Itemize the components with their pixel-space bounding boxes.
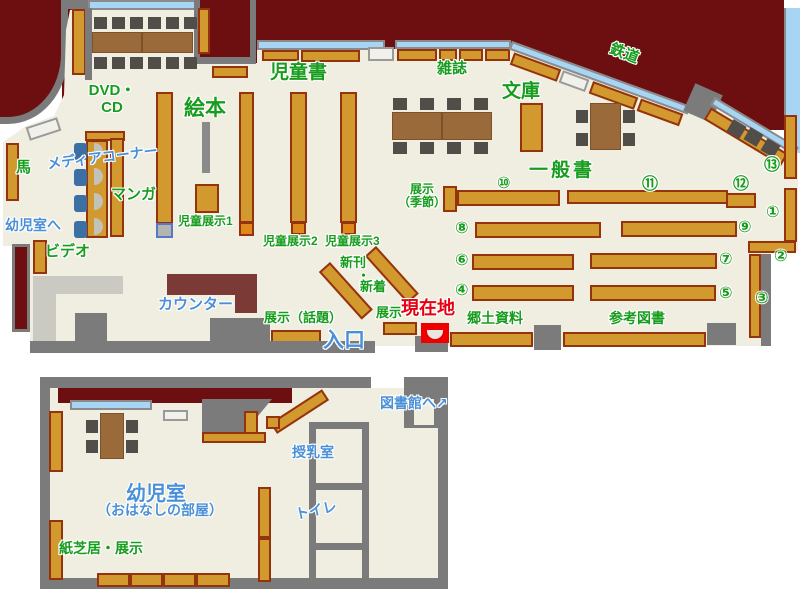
chair (126, 420, 138, 433)
media-seat (74, 221, 87, 238)
bookshelf (97, 573, 130, 587)
staff-area-floor (33, 276, 123, 294)
bookshelf (72, 9, 86, 75)
outside-wall-corner (0, 0, 68, 124)
bookshelf (457, 190, 560, 206)
entrance-gate (210, 318, 270, 341)
partition-wall (309, 422, 369, 429)
chair (86, 440, 98, 453)
shelf-end-cap (239, 222, 254, 236)
label-to-library: 図書館へ↗ (380, 396, 448, 411)
chair (447, 142, 461, 154)
label-children-exhibit3: 児童展示3 (325, 235, 380, 248)
chair (148, 57, 161, 69)
label-picture-books: 絵本 (184, 97, 226, 120)
shelf-number-2: ② (774, 249, 788, 265)
shelf-number-11: ⑪ (642, 177, 658, 193)
bookshelf (163, 573, 196, 587)
bookshelf (397, 49, 437, 61)
bookshelf (239, 92, 254, 223)
staff-area-floor (33, 294, 56, 341)
shelf-number-7: ⑦ (719, 252, 733, 268)
chair (130, 17, 143, 29)
chair (420, 98, 434, 110)
label-to-infant-room: 幼児室へ (5, 218, 61, 233)
bookshelf (784, 188, 797, 242)
label-nursing-room: 授乳室 (292, 445, 334, 460)
label-dvd-cd: DVD・ CD (86, 83, 138, 116)
label-exhibit-seasonal: 展示 （季節） (396, 183, 448, 209)
shelf-number-9: ⑨ (738, 220, 752, 236)
service-counter (167, 274, 257, 295)
shelf-number-1: ① (766, 205, 780, 221)
current-location-dot (427, 330, 443, 339)
arrow-up-right-icon: ↗ (436, 395, 448, 411)
current-location-marker (421, 323, 449, 343)
bookshelf (198, 8, 210, 54)
label-children-exhibit1: 児童展示1 (178, 215, 233, 228)
chair (184, 17, 197, 29)
shelf-number-13: ⑬ (764, 158, 780, 174)
chair (447, 98, 461, 110)
reading-table (442, 112, 492, 140)
wall-column (12, 244, 30, 332)
bookshelf (266, 416, 280, 429)
label-manga: マンガ (111, 187, 156, 204)
wall-opening (371, 377, 404, 388)
exhibit-stand (383, 322, 417, 335)
shelf-number-5: ⑤ (719, 286, 733, 302)
label-children-exhibit2: 児童展示2 (263, 235, 318, 248)
bookshelf (472, 254, 574, 270)
partition-wall (362, 422, 369, 588)
shelf-number-8: ⑧ (455, 221, 469, 237)
service-counter (235, 295, 257, 313)
chair (474, 98, 488, 110)
bookshelf (590, 285, 716, 301)
door (163, 410, 188, 421)
bookshelf (130, 573, 163, 587)
bookshelf (258, 538, 271, 582)
label-exhibit-topical: 展示（話題） (264, 311, 342, 325)
chair (576, 110, 588, 123)
label-children-books: 児童書 (270, 63, 327, 84)
exhibit-stand (195, 184, 219, 213)
chair (112, 17, 125, 29)
chair (420, 142, 434, 154)
bookshelf (726, 193, 756, 208)
shelf-number-6: ⑥ (455, 253, 469, 269)
bookshelf (520, 103, 543, 152)
reading-table (100, 413, 124, 459)
label-to-library-text: 図書館へ (380, 395, 436, 411)
chair (94, 57, 107, 69)
chair (86, 420, 98, 433)
shelf-number-12: ⑫ (733, 177, 749, 193)
chair (184, 57, 197, 69)
chair (393, 98, 407, 110)
label-local-materials: 郷土資料 (467, 311, 523, 326)
label-story-room: （おはなしの部屋） (97, 503, 223, 518)
bookshelf (301, 50, 360, 62)
bookshelf (563, 332, 706, 347)
wall (534, 325, 561, 350)
shelf-number-3: ③ (755, 291, 769, 307)
media-seat (74, 169, 87, 186)
chair (474, 142, 488, 154)
partition-wall (309, 543, 369, 550)
chair (576, 133, 588, 146)
label-kamishibai-exhibit: 紙芝居・展示 (59, 541, 143, 556)
reading-table (392, 112, 442, 140)
bookshelf (290, 92, 307, 223)
reading-table (142, 32, 193, 53)
chair (148, 17, 161, 29)
bookshelf (340, 92, 357, 223)
bookshelf (621, 221, 737, 237)
chair (130, 57, 143, 69)
bookshelf (784, 115, 797, 179)
label-counter: カウンター (158, 297, 233, 314)
library-floor-map: 児童書 絵本 雑誌 文庫 鉄道 一般書 DVD・ CD メディアコーナー マンガ… (0, 0, 800, 590)
entrance-gate (75, 313, 107, 341)
bookshelf (49, 411, 63, 472)
shelf-end-cap (156, 223, 173, 238)
reading-table (92, 32, 142, 53)
label-magazines: 雑誌 (437, 61, 467, 78)
shelf-number-10: ⑩ (497, 176, 511, 192)
bookshelf (212, 66, 248, 78)
partition-wall (309, 483, 369, 490)
chair (94, 17, 107, 29)
bookshelf (590, 253, 717, 269)
chair (623, 110, 635, 123)
shelf-number-4: ④ (455, 283, 469, 299)
label-exhibit: 展示 (376, 306, 402, 320)
chair (126, 440, 138, 453)
bookshelf (472, 285, 574, 301)
wall (85, 8, 92, 80)
window (70, 400, 152, 410)
label-bunko: 文庫 (502, 82, 540, 103)
label-general-books: 一般書 (529, 161, 595, 182)
chair (623, 133, 635, 146)
bookshelf (262, 50, 299, 61)
label-video: ビデオ (45, 244, 90, 261)
bookshelf (475, 222, 601, 238)
sign-post (202, 122, 210, 173)
window (257, 40, 385, 50)
bookshelf (450, 332, 533, 347)
bookshelf (258, 487, 271, 538)
media-seat (74, 195, 87, 212)
window (88, 0, 196, 10)
label-horse: 馬 (16, 160, 31, 177)
label-new-arrivals-2: 新着 (360, 280, 386, 294)
window (395, 40, 511, 49)
chair (393, 142, 407, 154)
chair (166, 57, 179, 69)
reading-table (590, 103, 621, 150)
bookshelf (748, 241, 796, 253)
chair (112, 57, 125, 69)
label-current-location: 現在地 (401, 299, 455, 319)
label-entrance: 入口 (323, 329, 365, 352)
chair (166, 17, 179, 29)
label-reference-books: 参考図書 (609, 311, 665, 326)
bookshelf (196, 573, 230, 587)
bookshelf (202, 432, 266, 443)
wall (707, 323, 736, 345)
door (368, 47, 394, 61)
